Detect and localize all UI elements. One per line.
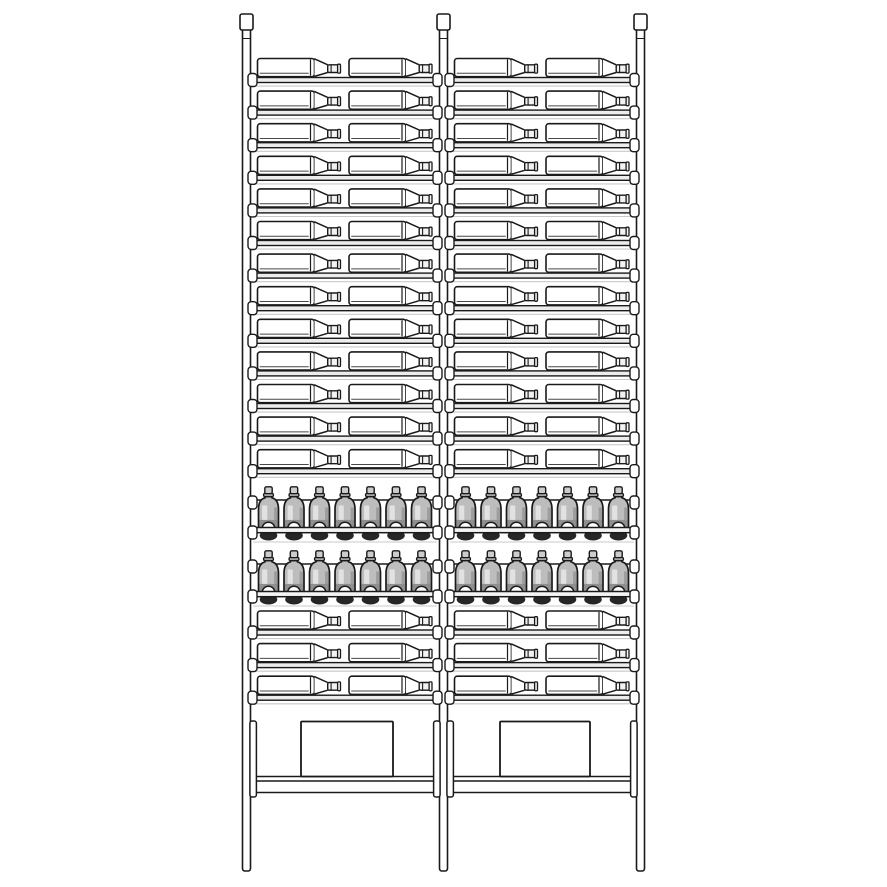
shelf-clip — [630, 237, 639, 250]
lying-bottle-lip — [626, 390, 629, 399]
lying-bottle-body — [258, 156, 315, 174]
shelf-rail — [251, 273, 440, 278]
lying-bottle-lip — [338, 325, 341, 334]
shelf-rail — [448, 241, 637, 246]
standing-bottle-cap — [589, 551, 596, 558]
shelf-rail — [251, 630, 440, 635]
shelf-clip — [248, 526, 257, 539]
shelf-rail — [251, 338, 440, 343]
shelf-clip — [630, 269, 639, 282]
shelf-clip — [248, 171, 257, 184]
shelf-clip — [445, 139, 454, 152]
lying-bottle-lip — [429, 358, 432, 367]
lying-bottle-lip — [626, 162, 629, 171]
standing-front-rail — [448, 528, 637, 533]
lying-bottle-body — [258, 450, 315, 468]
lying-bottle-body — [349, 189, 406, 207]
shelf-clip — [630, 367, 639, 380]
shelf-rail — [448, 78, 637, 83]
shelf-clip — [433, 302, 442, 315]
post-collar — [631, 721, 638, 797]
lying-bottle-lip — [535, 455, 538, 464]
shelf-rail — [448, 663, 637, 668]
shelf-clip — [445, 204, 454, 217]
shelf-clip — [445, 432, 454, 445]
lying-bottle-lip — [429, 97, 432, 106]
lying-bottle-lip — [338, 227, 341, 236]
lying-bottle-lip — [338, 64, 341, 73]
lying-bottle-body — [258, 222, 315, 240]
lying-bottle-lip — [626, 455, 629, 464]
shelf-clip — [248, 334, 257, 347]
lying-bottle-body — [546, 59, 603, 77]
lying-bottle-body — [258, 644, 315, 662]
shelf-rail — [251, 78, 440, 83]
shelf-clip — [433, 139, 442, 152]
storage-box — [500, 722, 590, 777]
shelf-clip — [445, 526, 454, 539]
lying-bottle-body — [546, 644, 603, 662]
shelf-clip — [248, 626, 257, 639]
lying-bottle-lip — [338, 162, 341, 171]
lying-bottle-body — [349, 254, 406, 272]
shelf-clip — [248, 465, 257, 478]
lying-bottle-body — [455, 222, 512, 240]
shelf-rail — [251, 143, 440, 148]
shelf-clip — [248, 106, 257, 119]
shelf-rail — [251, 208, 440, 213]
shelf-clip — [433, 465, 442, 478]
shelf-clip — [445, 269, 454, 282]
lying-bottle-lip — [626, 649, 629, 658]
lying-bottle-lip — [535, 682, 538, 691]
lying-bottle-body — [258, 91, 315, 109]
lying-bottle-lip — [429, 129, 432, 138]
lying-bottle-lip — [626, 358, 629, 367]
shelf-clip — [248, 302, 257, 315]
lying-bottle-lip — [429, 390, 432, 399]
lying-bottle-lip — [535, 227, 538, 236]
shelf-rail — [251, 306, 440, 311]
lying-bottle-lip — [429, 260, 432, 269]
standing-bottle-cap — [462, 487, 469, 494]
shelf-clip — [445, 302, 454, 315]
shelf-rail — [448, 175, 637, 180]
shelf-clip — [248, 74, 257, 87]
shelf-clip — [433, 269, 442, 282]
lying-bottle-body — [258, 59, 315, 77]
standing-bottle-cap — [265, 487, 272, 494]
shelf-clip — [445, 590, 454, 603]
shelf-clip — [445, 106, 454, 119]
lying-bottle-lip — [535, 617, 538, 626]
lying-bottle-lip — [535, 260, 538, 269]
lying-bottle-lip — [429, 682, 432, 691]
shelf-rail — [448, 371, 637, 376]
lying-bottle-lip — [535, 195, 538, 204]
lying-bottle-body — [349, 59, 406, 77]
lying-bottle-lip — [626, 97, 629, 106]
lying-bottle-lip — [626, 227, 629, 236]
lying-bottle-lip — [338, 292, 341, 301]
shelf-rail — [448, 338, 637, 343]
lying-bottle-lip — [338, 423, 341, 432]
shelf-clip — [630, 590, 639, 603]
lying-bottle-lip — [535, 423, 538, 432]
shelf-rail — [251, 175, 440, 180]
lying-bottle-body — [349, 319, 406, 337]
shelf-clip — [248, 560, 257, 573]
shelf-clip — [630, 106, 639, 119]
lying-bottle-body — [546, 287, 603, 305]
lying-bottle-lip — [338, 260, 341, 269]
lying-bottle-lip — [626, 292, 629, 301]
shelf-clip — [433, 560, 442, 573]
shelf-clip — [630, 302, 639, 315]
shelf-rail — [448, 404, 637, 409]
lying-bottle-body — [455, 287, 512, 305]
standing-bottle-cap — [615, 487, 622, 494]
lying-bottle-body — [546, 124, 603, 142]
lying-bottle-lip — [429, 227, 432, 236]
standing-bottle-cap — [589, 487, 596, 494]
lying-bottle-body — [455, 385, 512, 403]
lying-bottle-body — [455, 319, 512, 337]
shelf-clip — [630, 204, 639, 217]
lying-bottle-body — [546, 156, 603, 174]
lying-bottle-body — [455, 189, 512, 207]
shelf-clip — [433, 496, 442, 509]
post-collar — [434, 721, 441, 797]
shelf-clip — [433, 204, 442, 217]
shelf-clip — [248, 400, 257, 413]
post-top-cap — [437, 14, 450, 30]
shelf-clip — [630, 659, 639, 672]
lying-bottle-lip — [626, 617, 629, 626]
shelf-rail — [448, 306, 637, 311]
shelf-clip — [248, 204, 257, 217]
shelf-clip — [630, 171, 639, 184]
shelf-rail — [251, 241, 440, 246]
lying-bottle-lip — [626, 129, 629, 138]
shelf-clip — [630, 465, 639, 478]
standing-bottle-cap — [290, 551, 297, 558]
lying-bottle-body — [546, 222, 603, 240]
lying-bottle-body — [546, 676, 603, 694]
shelf-rail — [448, 273, 637, 278]
standing-bottle-cap — [392, 551, 399, 558]
standing-bottle-cap — [367, 551, 374, 558]
shelf-rail — [448, 208, 637, 213]
shelf-clip — [445, 237, 454, 250]
lying-bottle-lip — [535, 292, 538, 301]
shelf-clip — [433, 400, 442, 413]
lying-bottle-lip — [626, 682, 629, 691]
illustration-canvas — [0, 0, 887, 887]
shelf-clip — [445, 626, 454, 639]
shelf-clip — [445, 171, 454, 184]
lying-bottle-body — [349, 287, 406, 305]
lying-bottle-lip — [535, 64, 538, 73]
standing-bottle-cap — [487, 487, 494, 494]
lying-bottle-lip — [535, 97, 538, 106]
lying-bottle-body — [258, 189, 315, 207]
shelf-rail — [251, 436, 440, 441]
shelf-clip — [433, 171, 442, 184]
lying-bottle-body — [258, 352, 315, 370]
lying-bottle-lip — [626, 423, 629, 432]
lying-bottle-body — [455, 450, 512, 468]
shelf-clip — [248, 269, 257, 282]
shelf-clip — [630, 334, 639, 347]
shelf-rail — [251, 695, 440, 700]
standing-front-rail — [448, 592, 637, 597]
lying-bottle-body — [546, 319, 603, 337]
lying-bottle-body — [546, 417, 603, 435]
standing-bottle-cap — [538, 487, 545, 494]
standing-bottle-cap — [418, 487, 425, 494]
lying-bottle-body — [546, 611, 603, 629]
shelf-clip — [630, 139, 639, 152]
post-top-cap — [240, 14, 253, 30]
lying-bottle-body — [455, 156, 512, 174]
lying-bottle-lip — [535, 358, 538, 367]
lying-bottle-body — [349, 676, 406, 694]
shelf-clip — [433, 106, 442, 119]
shelf-clip — [630, 432, 639, 445]
lying-bottle-lip — [535, 129, 538, 138]
lying-bottle-lip — [429, 617, 432, 626]
standing-bottle-cap — [265, 551, 272, 558]
shelf-rail — [251, 469, 440, 474]
shelf-clip — [248, 432, 257, 445]
lying-bottle-body — [455, 352, 512, 370]
lying-bottle-body — [349, 417, 406, 435]
standing-bottle-cap — [564, 487, 571, 494]
standing-bottle-cap — [367, 487, 374, 494]
lying-bottle-lip — [429, 423, 432, 432]
lying-bottle-body — [546, 189, 603, 207]
standing-bottle-cap — [418, 551, 425, 558]
lying-bottle-body — [349, 222, 406, 240]
shelf-rail — [251, 404, 440, 409]
shelf-clip — [248, 691, 257, 704]
shelf-clip — [433, 432, 442, 445]
standing-bottle-cap — [462, 551, 469, 558]
standing-front-rail — [251, 592, 440, 597]
lying-bottle-body — [546, 254, 603, 272]
lying-bottle-lip — [338, 390, 341, 399]
lying-bottle-lip — [429, 649, 432, 658]
standing-front-rail — [251, 528, 440, 533]
lying-bottle-body — [258, 417, 315, 435]
lying-bottle-body — [349, 611, 406, 629]
shelf-clip — [445, 334, 454, 347]
lying-bottle-lip — [429, 292, 432, 301]
shelf-clip — [248, 590, 257, 603]
lying-bottle-body — [349, 644, 406, 662]
standing-bottle-cap — [513, 551, 520, 558]
standing-bottle-cap — [538, 551, 545, 558]
lying-bottle-body — [258, 611, 315, 629]
lying-bottle-body — [258, 254, 315, 272]
standing-bottle-cap — [564, 551, 571, 558]
shelf-clip — [433, 626, 442, 639]
shelf-clip — [433, 691, 442, 704]
shelf-clip — [248, 139, 257, 152]
shelf-clip — [433, 590, 442, 603]
lying-bottle-lip — [626, 64, 629, 73]
shelf-clip — [433, 74, 442, 87]
standing-bottle-cap — [487, 551, 494, 558]
lying-bottle-lip — [338, 97, 341, 106]
lying-bottle-body — [455, 59, 512, 77]
lying-bottle-lip — [429, 64, 432, 73]
lying-bottle-lip — [535, 325, 538, 334]
lying-bottle-lip — [338, 682, 341, 691]
lying-bottle-lip — [626, 260, 629, 269]
standing-bottle-cap — [316, 551, 323, 558]
shelf-clip — [248, 367, 257, 380]
post-top-cap — [634, 14, 647, 30]
shelf-rail — [448, 143, 637, 148]
shelf-clip — [433, 526, 442, 539]
lying-bottle-body — [349, 156, 406, 174]
shelf-clip — [630, 560, 639, 573]
shelf-clip — [248, 496, 257, 509]
standing-bottle-cap — [513, 487, 520, 494]
shelf-clip — [433, 659, 442, 672]
lying-bottle-lip — [338, 129, 341, 138]
shelf-clip — [630, 74, 639, 87]
lying-bottle-body — [258, 287, 315, 305]
lying-bottle-body — [258, 319, 315, 337]
standing-bottle-cap — [290, 487, 297, 494]
lying-bottle-body — [258, 676, 315, 694]
lying-bottle-lip — [338, 617, 341, 626]
lying-bottle-lip — [429, 162, 432, 171]
shelf-clip — [630, 496, 639, 509]
lying-bottle-lip — [429, 455, 432, 464]
shelf-rail — [448, 110, 637, 115]
wine-rack-line-drawing — [0, 0, 887, 887]
lying-bottle-body — [349, 124, 406, 142]
lying-bottle-lip — [535, 390, 538, 399]
lying-bottle-body — [258, 385, 315, 403]
lying-bottle-body — [546, 91, 603, 109]
shelf-clip — [445, 691, 454, 704]
lying-bottle-lip — [338, 195, 341, 204]
shelf-clip — [445, 659, 454, 672]
shelf-clip — [248, 237, 257, 250]
storage-box — [301, 722, 393, 777]
lying-bottle-lip — [429, 325, 432, 334]
lying-bottle-lip — [626, 195, 629, 204]
lying-bottle-lip — [338, 455, 341, 464]
shelf-clip — [248, 659, 257, 672]
post-collar — [447, 721, 454, 797]
shelf-clip — [445, 465, 454, 478]
lying-bottle-body — [546, 352, 603, 370]
shelf-clip — [445, 400, 454, 413]
lying-bottle-body — [546, 450, 603, 468]
shelf-rail — [251, 110, 440, 115]
shelf-rail — [251, 663, 440, 668]
lying-bottle-body — [455, 124, 512, 142]
lying-bottle-lip — [338, 649, 341, 658]
shelf-rail — [448, 695, 637, 700]
standing-bottle-cap — [341, 551, 348, 558]
lying-bottle-body — [455, 254, 512, 272]
lying-bottle-body — [455, 417, 512, 435]
shelf-clip — [445, 496, 454, 509]
lying-bottle-body — [455, 676, 512, 694]
shelf-clip — [630, 691, 639, 704]
standing-bottle-cap — [615, 551, 622, 558]
shelf-clip — [433, 334, 442, 347]
shelf-rail — [251, 371, 440, 376]
lying-bottle-body — [349, 450, 406, 468]
standing-bottle-cap — [316, 487, 323, 494]
shelf-clip — [630, 526, 639, 539]
shelf-rail — [448, 630, 637, 635]
lying-bottle-body — [349, 91, 406, 109]
lying-bottle-body — [455, 611, 512, 629]
shelf-rail — [448, 436, 637, 441]
lying-bottle-lip — [338, 358, 341, 367]
lying-bottle-body — [349, 352, 406, 370]
standing-bottle-cap — [341, 487, 348, 494]
lying-bottle-body — [258, 124, 315, 142]
shelf-clip — [445, 74, 454, 87]
lying-bottle-lip — [429, 195, 432, 204]
lying-bottle-lip — [535, 162, 538, 171]
shelf-clip — [630, 626, 639, 639]
shelf-clip — [445, 560, 454, 573]
lying-bottle-body — [546, 385, 603, 403]
shelf-clip — [445, 367, 454, 380]
lying-bottle-lip — [626, 325, 629, 334]
post-collar — [250, 721, 257, 797]
lying-bottle-body — [455, 644, 512, 662]
standing-bottle-cap — [392, 487, 399, 494]
shelf-rail — [448, 469, 637, 474]
shelf-clip — [433, 237, 442, 250]
shelf-clip — [630, 400, 639, 413]
lying-bottle-body — [349, 385, 406, 403]
lying-bottle-lip — [535, 649, 538, 658]
shelf-clip — [433, 367, 442, 380]
lying-bottle-body — [455, 91, 512, 109]
